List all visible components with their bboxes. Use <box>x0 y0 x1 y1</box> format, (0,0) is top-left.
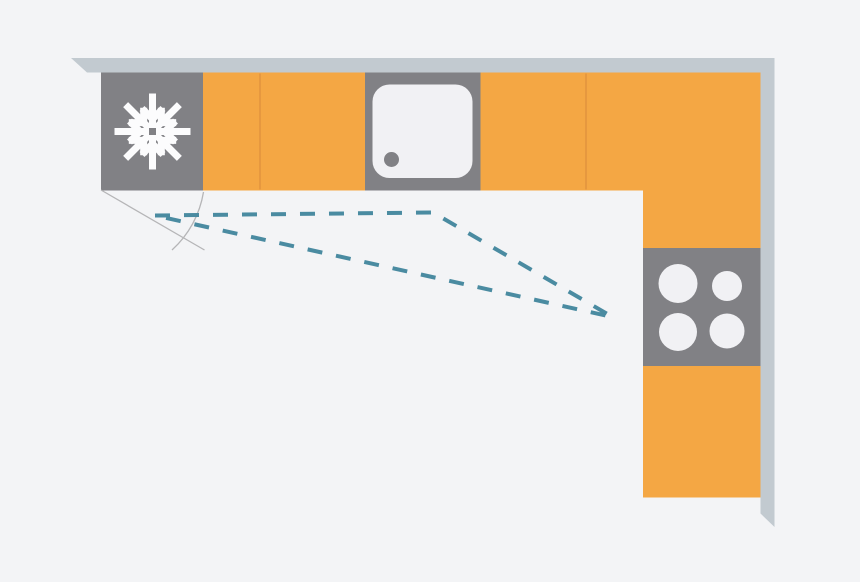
snowflake-icon <box>115 94 191 170</box>
burner <box>659 313 697 351</box>
sink <box>365 73 481 191</box>
burner <box>712 271 742 301</box>
burner <box>710 314 745 349</box>
sink-drain <box>384 152 399 167</box>
floorplan-canvas <box>0 0 860 582</box>
burner <box>659 264 698 303</box>
hob <box>643 248 761 366</box>
hob-body <box>643 248 761 366</box>
fridge-freezer <box>101 73 203 191</box>
kitchen-floorplan <box>0 0 860 582</box>
snowflake-center <box>149 128 156 135</box>
